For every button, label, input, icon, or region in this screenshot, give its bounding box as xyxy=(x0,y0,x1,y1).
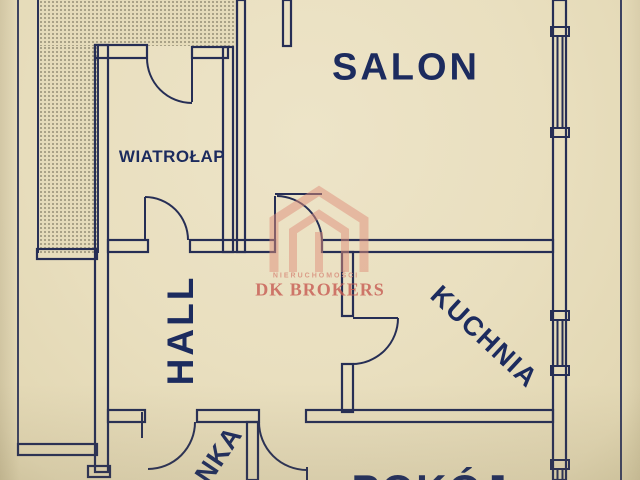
room-label-pokoj: POKÓJ xyxy=(351,466,508,480)
room-label-hall: HALL xyxy=(160,275,202,386)
walls xyxy=(18,0,566,480)
door-swings xyxy=(142,58,398,480)
floor-plan-canvas: NIERUCHOMOŚCI DK BROKERS SALON WIATROŁAP… xyxy=(0,0,640,480)
room-label-wiatrolap: WIATROŁAP xyxy=(119,147,225,167)
floorplan-drawing xyxy=(0,0,640,480)
room-label-salon: SALON xyxy=(332,47,480,90)
